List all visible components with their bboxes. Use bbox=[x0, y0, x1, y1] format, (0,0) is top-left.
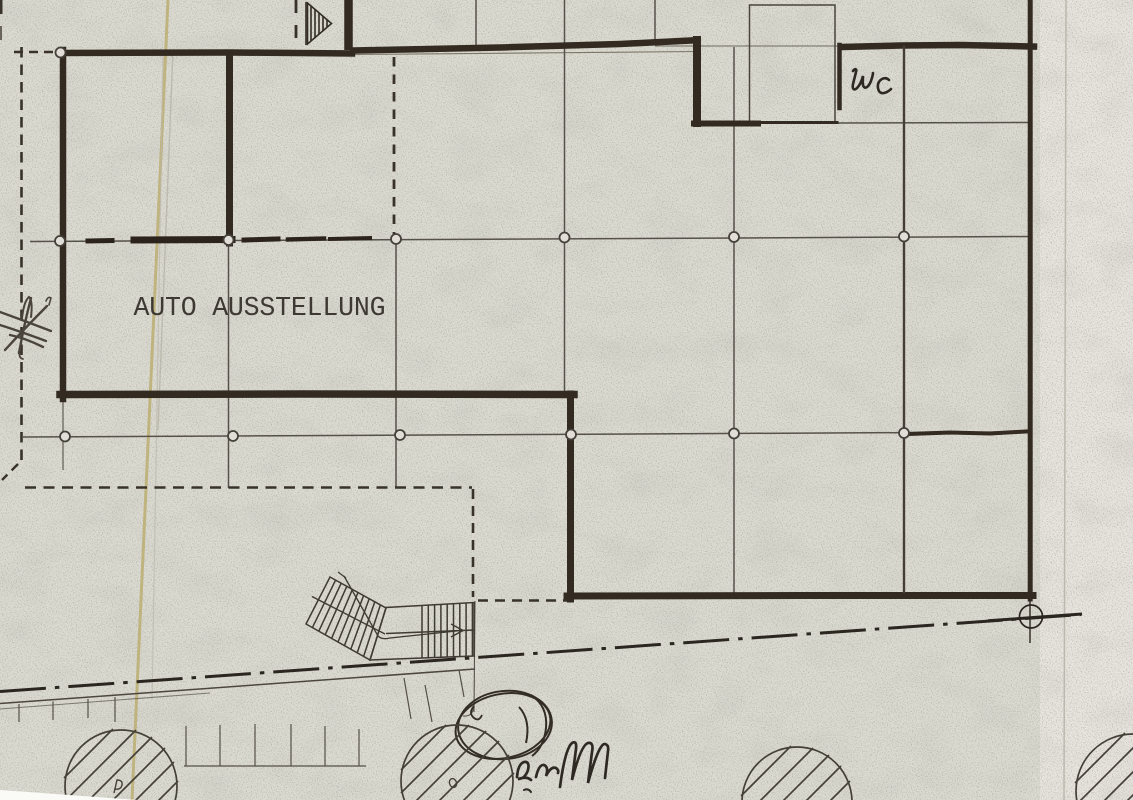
svg-text:AUTO AUSSTELLUNG: AUTO AUSSTELLUNG bbox=[134, 293, 386, 323]
